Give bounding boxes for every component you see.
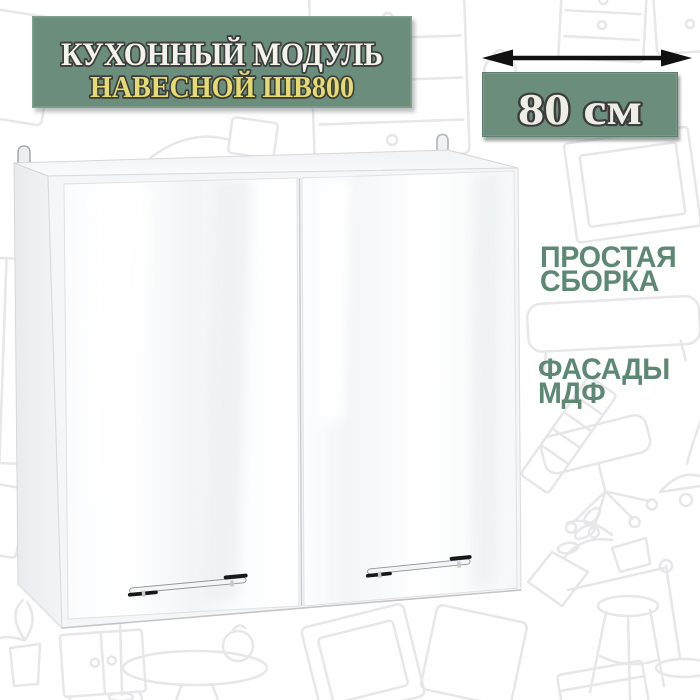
feature-simple-assembly: ПРОСТАЯ СБОРКА	[540, 246, 676, 294]
feature-mdf-facades: ФАСАДЫ МДФ	[538, 358, 670, 406]
width-dimension-badge: 80 см	[482, 72, 678, 137]
banner-subtitle: НАВЕСНОЙ ШВ800	[90, 69, 354, 104]
banner-text: КУХОННЫЙ МОДУЛЬ НАВЕСНОЙ ШВ800	[33, 17, 411, 107]
cabinet-illustration	[14, 135, 521, 629]
product-card: КУХОННЫЙ МОДУЛЬ НАВЕСНОЙ ШВ800 80 см ПРО…	[0, 0, 700, 700]
width-dimension-label: 80 см	[518, 85, 642, 134]
banner-title: КУХОННЫЙ МОДУЛЬ	[61, 36, 383, 73]
product-banner: КУХОННЫЙ МОДУЛЬ НАВЕСНОЙ ШВ800	[32, 16, 412, 108]
feature-line: СБОРКА	[540, 270, 676, 294]
width-arrow-icon	[481, 46, 693, 70]
hanging-loop-right-icon	[437, 135, 448, 153]
